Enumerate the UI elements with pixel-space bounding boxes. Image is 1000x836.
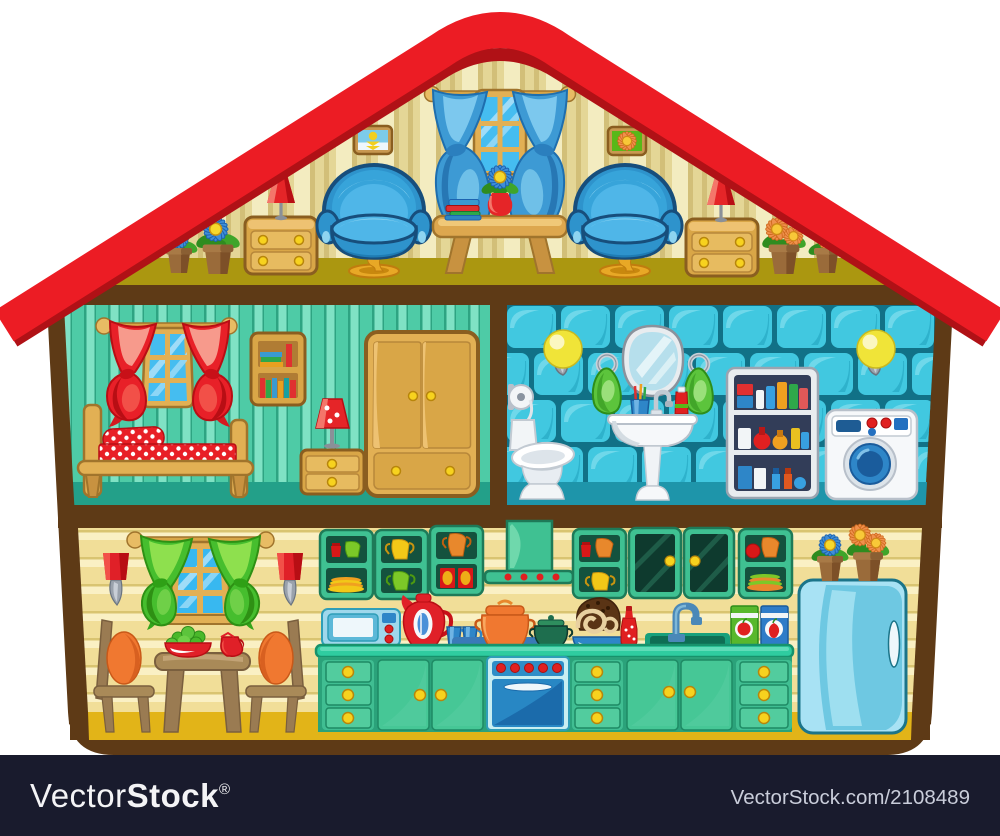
svg-text:VectorStock.com/2108489: VectorStock.com/2108489 [731,786,970,809]
svg-text:VectorStock®: VectorStock® [30,777,231,814]
